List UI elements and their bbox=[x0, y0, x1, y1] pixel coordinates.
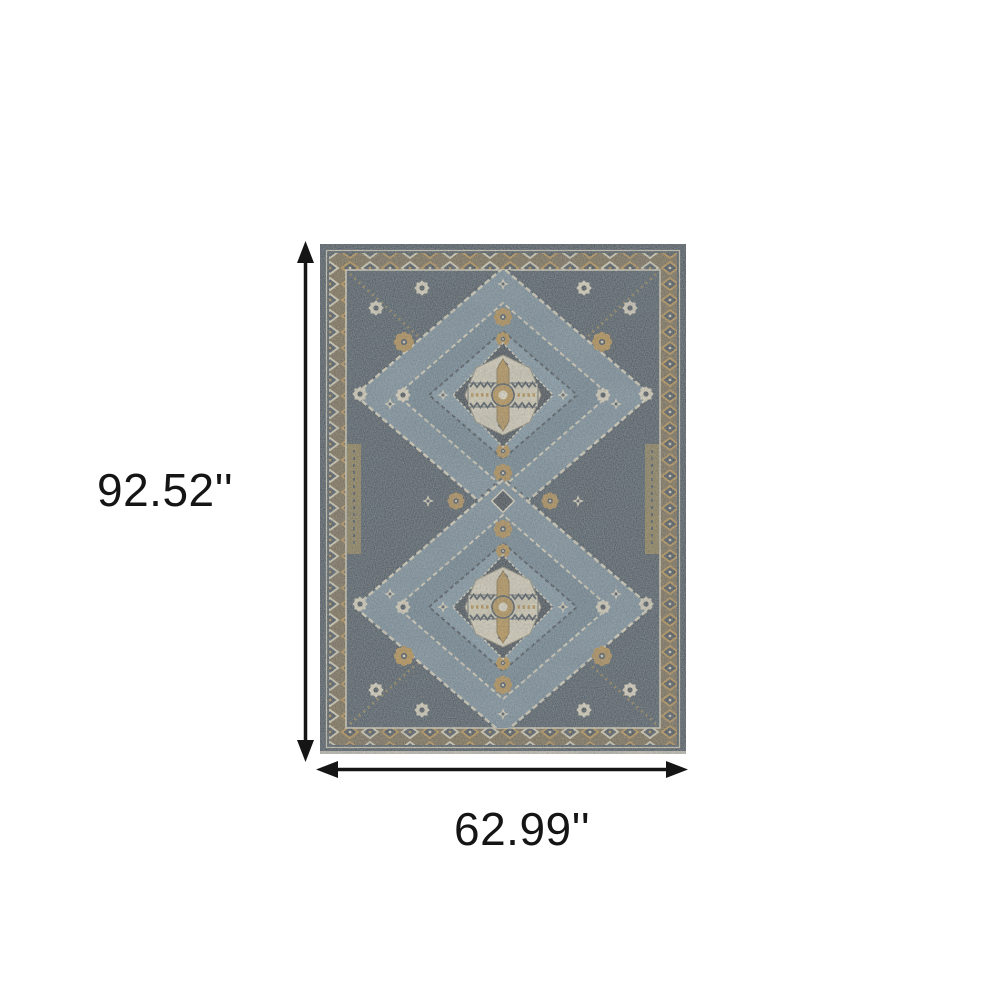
arrow-right-icon bbox=[666, 761, 688, 778]
arrow-up-icon bbox=[297, 241, 314, 263]
arrow-down-icon bbox=[297, 740, 314, 762]
height-dimension-label: 92.52'' bbox=[97, 467, 233, 513]
vertical-dimension-arrow bbox=[297, 241, 314, 762]
arrow-left-icon bbox=[316, 761, 338, 778]
horizontal-dimension-arrow bbox=[316, 761, 688, 778]
rug-image-container bbox=[320, 244, 686, 754]
rug-fringe bbox=[320, 751, 686, 754]
width-dimension-label: 62.99'' bbox=[454, 806, 590, 852]
rug-image bbox=[320, 244, 686, 754]
product-dimension-diagram: 92.52'' 62.99'' bbox=[0, 0, 1000, 1000]
